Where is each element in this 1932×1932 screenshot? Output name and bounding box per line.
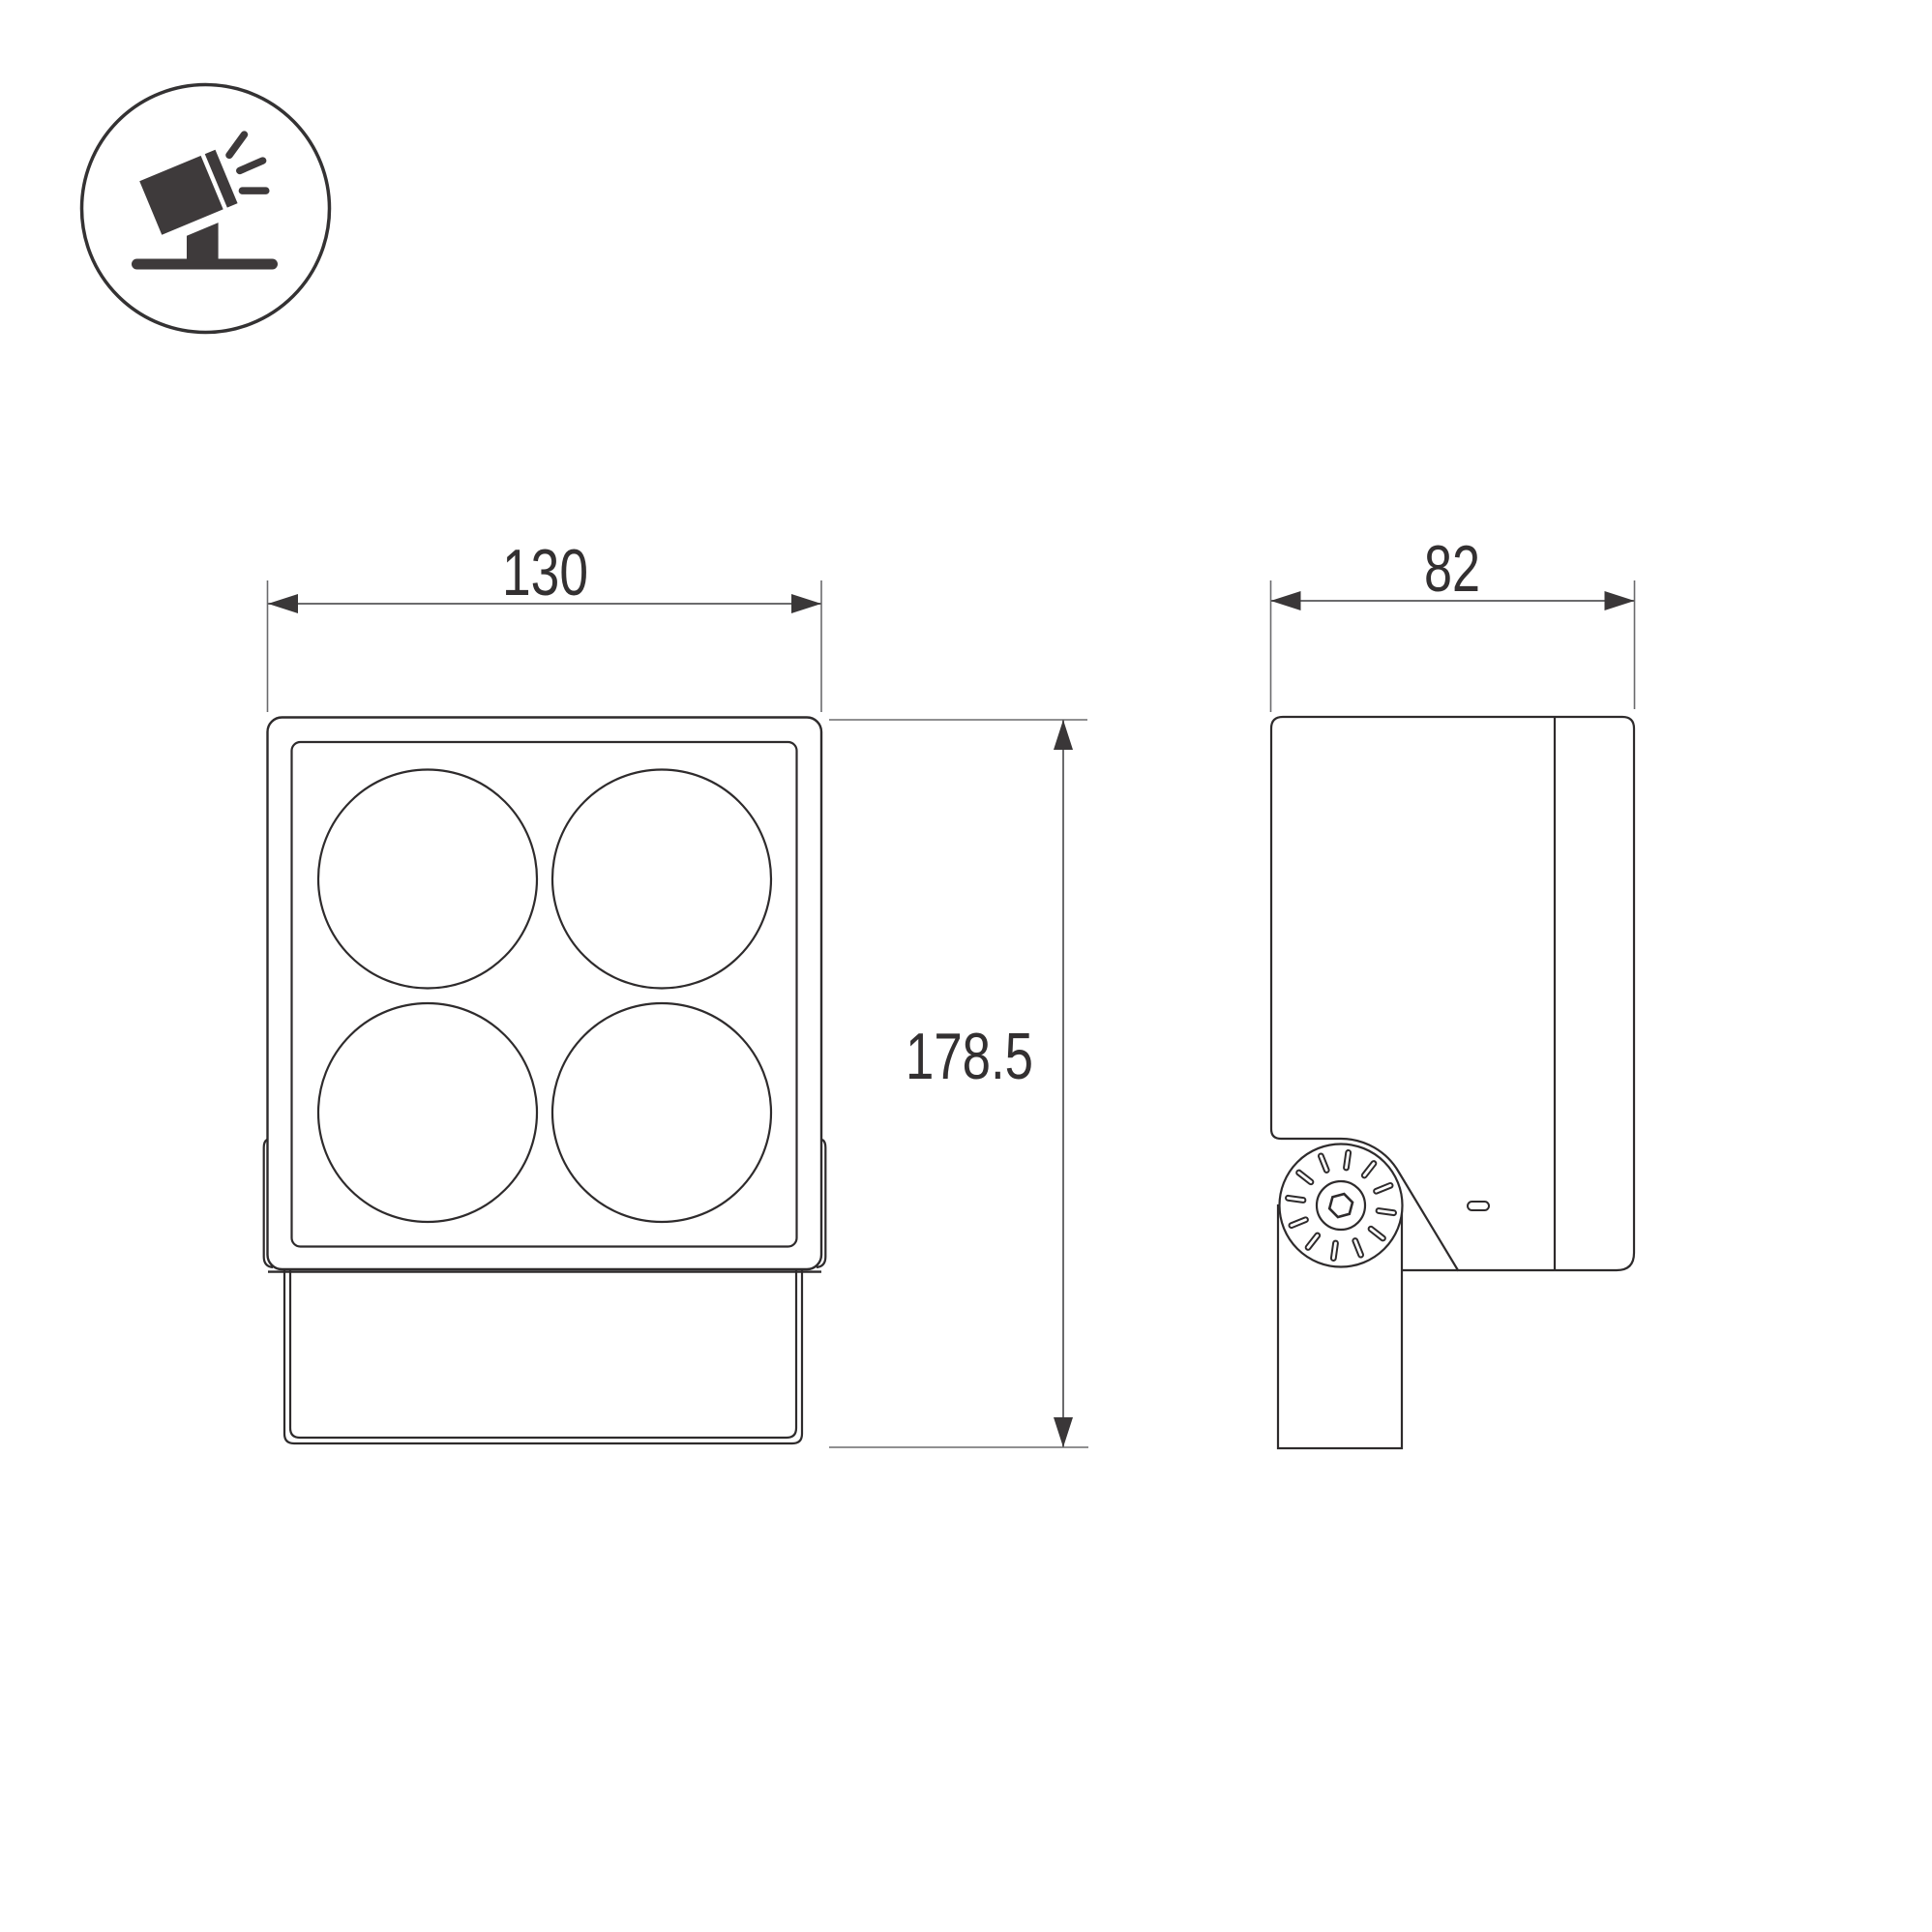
- svg-text:82: 82: [1424, 532, 1480, 606]
- svg-text:130: 130: [502, 536, 588, 609]
- svg-text:178.5: 178.5: [906, 1020, 1033, 1093]
